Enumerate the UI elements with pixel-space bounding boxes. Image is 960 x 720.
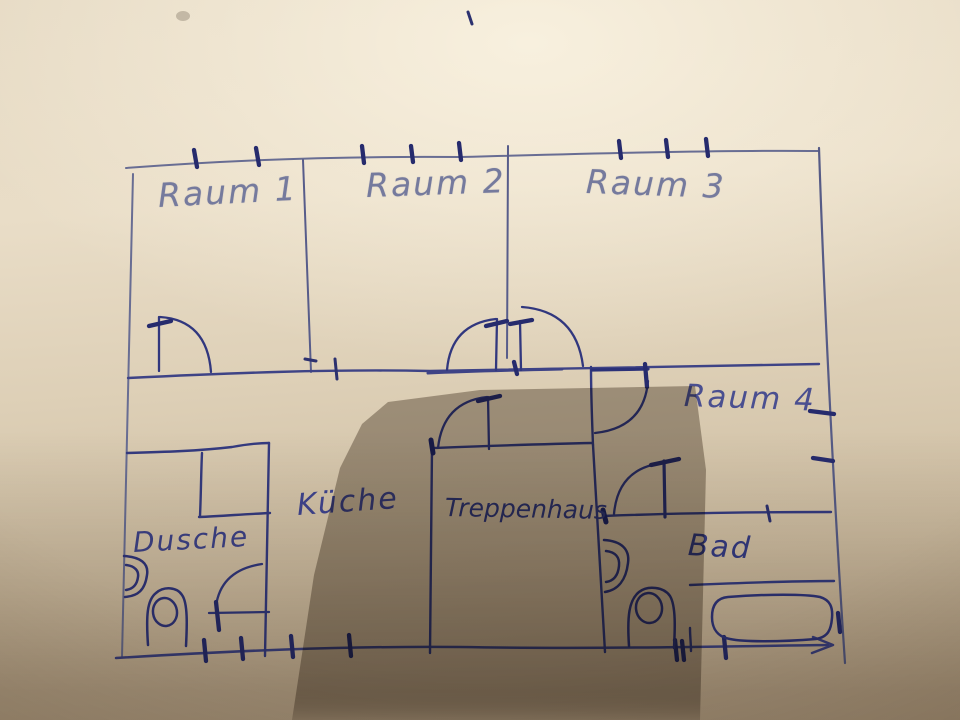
door-raum4-leaf [592, 369, 648, 370]
floor-plan-sketch [0, 0, 960, 720]
door-dusche [209, 564, 269, 630]
door-raum1-arc [160, 317, 211, 372]
door-raum3 [510, 307, 583, 370]
wall-raum1-raum2 [303, 160, 311, 372]
wash-basin-bad-inner [606, 551, 619, 582]
wall-tick [767, 506, 770, 521]
wall-dusche-right [265, 443, 269, 656]
door-kueche-leaf [488, 397, 489, 449]
door-raum4-tick [645, 364, 647, 387]
window-tick [362, 146, 364, 163]
bathtub-icon [712, 595, 832, 642]
room-label-raum1: Raum 1 [157, 169, 299, 215]
door-raum4-arc [595, 381, 648, 433]
toilet-bad-seat [635, 592, 664, 625]
corridor-tick [335, 359, 337, 379]
room-label-raum4: Raum 4 [683, 378, 816, 419]
doors [149, 307, 679, 630]
door-bad-arc [614, 463, 663, 514]
window-tick [204, 640, 206, 661]
door-raum1-tick [149, 321, 171, 326]
window-tick [291, 636, 293, 657]
toilet-bad-icon [628, 588, 674, 648]
window-tick [813, 458, 833, 461]
shower-divider-vertical [200, 453, 202, 516]
door-kueche-arc [438, 397, 487, 448]
door-raum2 [447, 319, 507, 370]
door-bad-leaf [664, 461, 665, 517]
wall-bad-top [603, 512, 831, 516]
door-bad-tick [651, 459, 679, 465]
window-tick [724, 637, 726, 658]
window-tick [706, 139, 708, 156]
door-raum2-leaf [496, 319, 497, 370]
door-bad [614, 459, 679, 517]
ink-fleck [468, 12, 472, 24]
window-tick [666, 140, 668, 157]
toilet-dusche-seat [151, 596, 179, 627]
room-label-dusche: Dusche [132, 520, 250, 559]
door-dusche-arc [216, 564, 262, 606]
wall-foot-tick [305, 359, 316, 361]
window-tick [459, 143, 461, 160]
wash-basin-dusche-inner [126, 565, 138, 590]
room-label-raum2: Raum 2 [365, 161, 506, 205]
stray-marks [176, 11, 472, 24]
wall-treppenhaus-left [430, 448, 432, 653]
door-raum3-tick [510, 320, 532, 324]
wall-dusche-top [127, 443, 269, 453]
wall-left [122, 174, 133, 657]
window-tick [349, 635, 351, 656]
wall-raum4-stub [591, 367, 593, 445]
window-tick [256, 148, 259, 165]
ink-blob [431, 440, 433, 453]
window-tick [194, 150, 197, 167]
ink-blob [514, 362, 517, 374]
wall-right [819, 148, 845, 663]
door-raum3-arc [522, 307, 583, 366]
wall-treppenhaus-top [433, 443, 592, 448]
room-label-raum3: Raum 3 [585, 162, 726, 206]
window-tick [411, 146, 413, 162]
bathtub-shelf-line [690, 581, 834, 585]
window-tick [682, 641, 684, 660]
bathtub-left-stub [690, 628, 691, 651]
door-raum2-tick [486, 321, 507, 326]
door-raum3-leaf [520, 321, 521, 370]
paper-smudge [176, 11, 190, 21]
door-dusche-tick [216, 602, 219, 630]
floor-plan-photo: Raum 1 Raum 2 Raum 3 Raum 4 Küche Treppe… [0, 0, 960, 720]
wall-treppenhaus-bad [593, 445, 605, 652]
door-kueche [438, 396, 500, 449]
room-label-kueche: Küche [296, 481, 400, 523]
room-label-treppenhaus: Treppenhaus [445, 493, 607, 525]
wall-raum2-raum3 [507, 146, 508, 358]
window-tick [838, 613, 840, 632]
door-raum1 [149, 317, 211, 372]
shower-divider-horizontal [199, 513, 270, 517]
door-raum4 [592, 364, 648, 433]
wall-bottom [116, 645, 828, 658]
wash-basin-bad-icon [604, 540, 628, 592]
window-tick [619, 141, 621, 158]
room-label-bad: Bad [687, 528, 753, 566]
window-tick [241, 638, 243, 659]
